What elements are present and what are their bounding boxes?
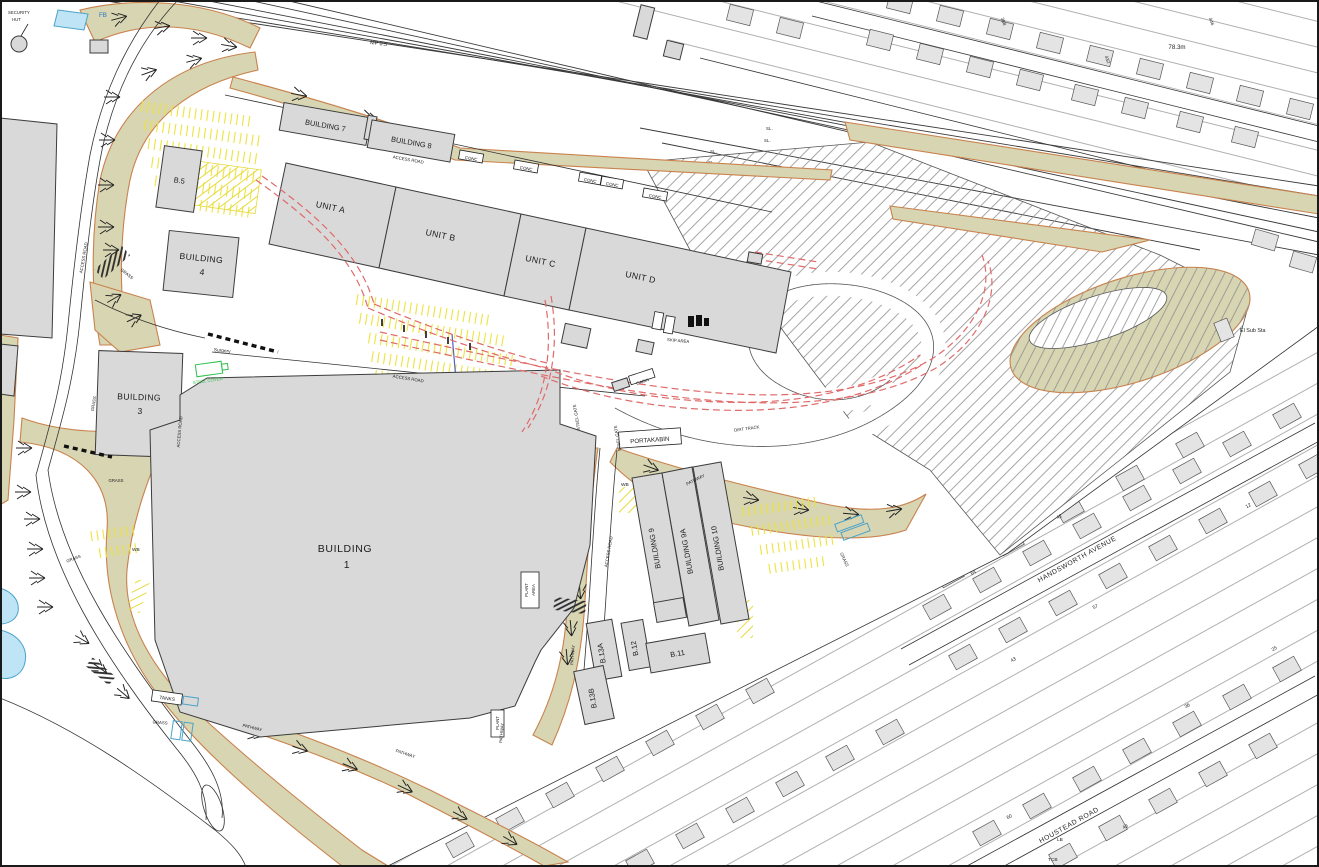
building-1-number: 1 [344,559,350,571]
building-4-number: 4 [199,267,205,277]
building-b5-label: B.5 [173,175,185,185]
plant-area-label-line1: PLANT [524,583,529,597]
security-hut-shape [11,36,27,52]
wb-label: WB [621,482,629,488]
footbridge-label: FB [99,12,107,19]
site-plan-map: 388 432 446 78.3m MP 0.5 SL . SL . SL . … [0,0,1319,867]
footbridge-shape [54,10,88,30]
plant-area-label-line2: AREA [531,584,536,596]
security-hut-label-line2: HUT [12,17,21,22]
grass-label: GRASS [108,478,123,483]
spot-height-label: 78.3m [1168,44,1185,51]
building-3-number: 3 [137,406,143,416]
signal-label: SL . [766,126,773,131]
security-hut-label-line1: SECURITY [8,10,30,15]
site-plan-page: 388 432 446 78.3m MP 0.5 SL . SL . SL . … [0,0,1319,867]
wb-label: WB [132,547,140,553]
el-sub-sta-label: El Sub Sta [1240,328,1265,334]
letterbox-label: LB [1057,837,1063,843]
building-3-label: BUILDING [117,391,161,403]
signal-label: SL . [764,138,771,143]
phonebox-label: TCB [1048,857,1058,863]
signal-label: SL . [710,149,717,154]
building-1-label: BUILDING [318,543,372,555]
